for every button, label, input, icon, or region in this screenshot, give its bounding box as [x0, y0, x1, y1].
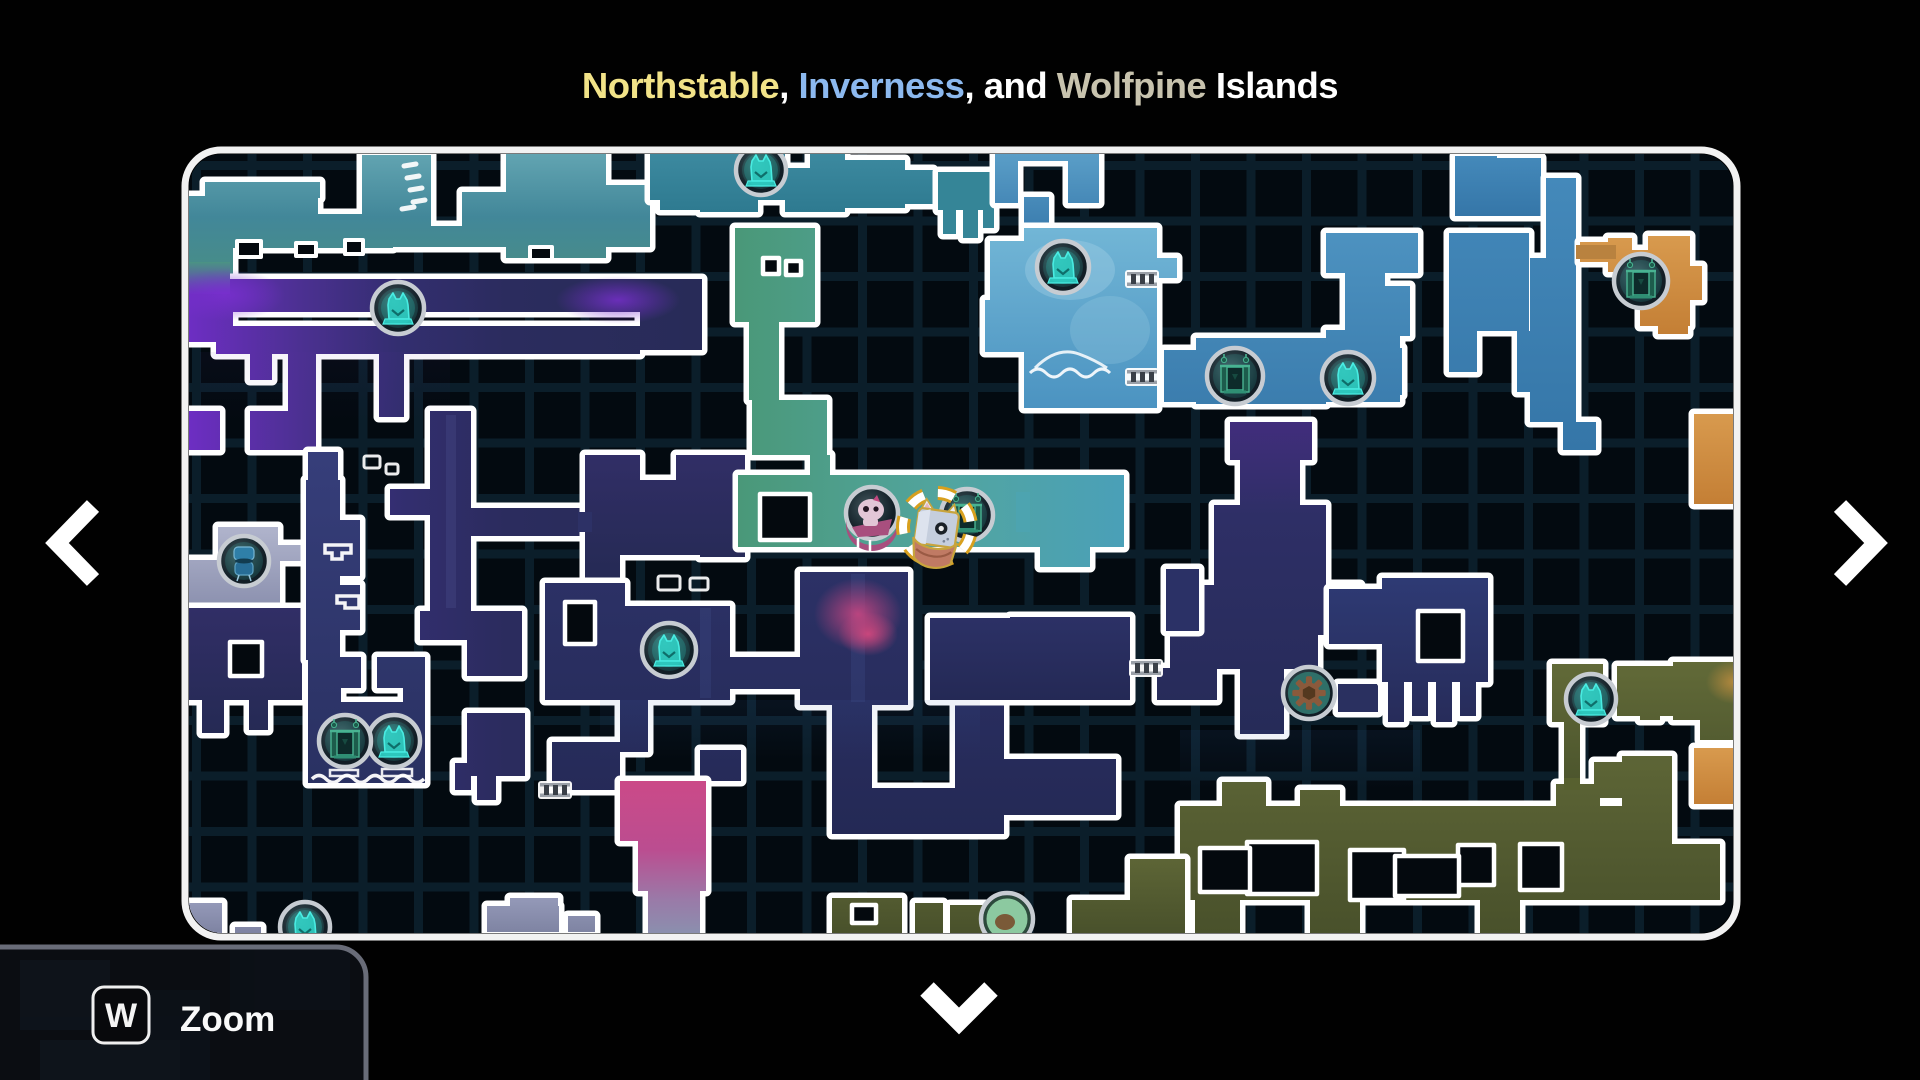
svg-text:Zoom: Zoom	[180, 1000, 275, 1039]
svg-text:W: W	[105, 997, 138, 1035]
svg-text:Northstable, Inverness, and Wo: Northstable, Inverness, and Wolfpine Isl…	[582, 65, 1338, 106]
